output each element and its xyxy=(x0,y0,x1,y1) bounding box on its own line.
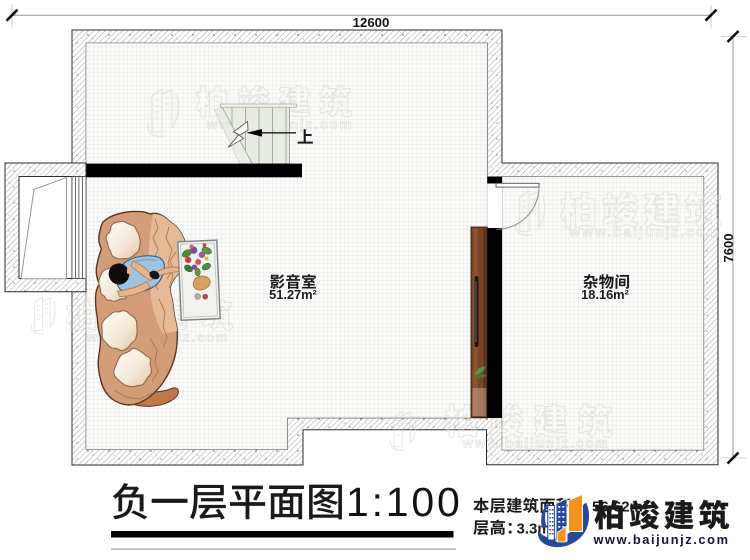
svg-text:www.baijunjz.com: www.baijunjz.com xyxy=(593,532,730,547)
svg-text:18.16m²: 18.16m² xyxy=(581,287,629,302)
svg-text:7600: 7600 xyxy=(721,234,736,263)
svg-text:1:100: 1:100 xyxy=(346,479,463,525)
svg-text:www.baijunjz.com: www.baijunjz.com xyxy=(462,436,610,451)
svg-text:12600: 12600 xyxy=(353,15,390,30)
svg-text:51.27m²: 51.27m² xyxy=(269,287,317,302)
svg-text:www.baijunjz.com: www.baijunjz.com xyxy=(568,224,720,240)
svg-text:3.3m: 3.3m xyxy=(517,521,551,538)
